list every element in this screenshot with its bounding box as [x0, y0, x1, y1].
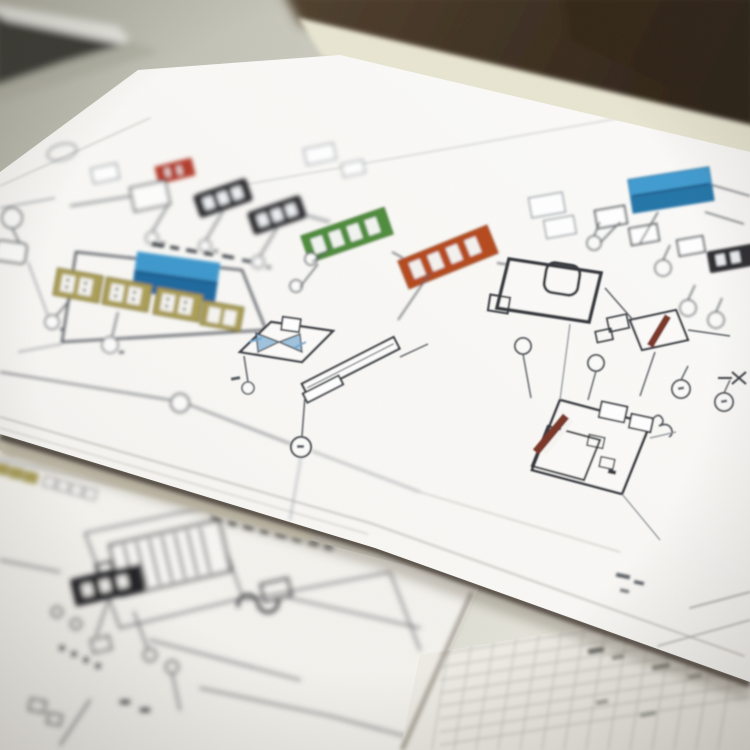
photo-root — [0, 0, 750, 750]
noise-overlay — [0, 0, 750, 750]
photo-canvas — [0, 0, 750, 750]
